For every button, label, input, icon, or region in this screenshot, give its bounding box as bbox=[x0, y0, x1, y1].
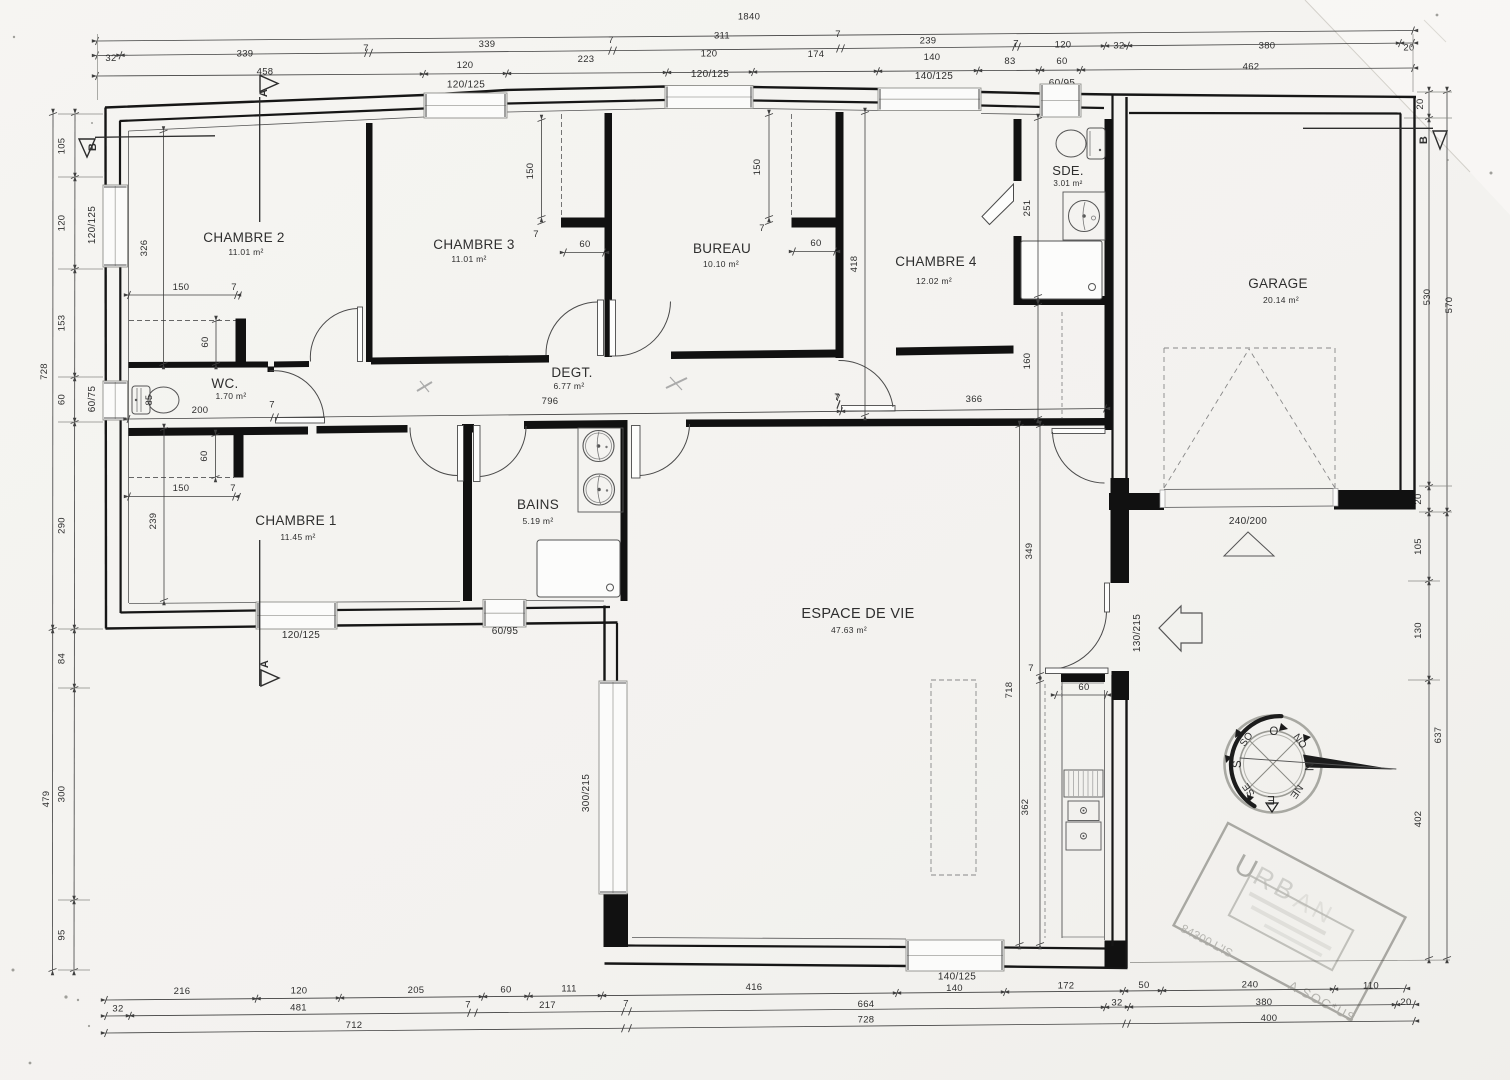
svg-text:60: 60 bbox=[57, 394, 68, 405]
svg-text:85: 85 bbox=[144, 395, 154, 406]
svg-text:3.01 m²: 3.01 m² bbox=[1053, 179, 1082, 188]
svg-text:47.63 m²: 47.63 m² bbox=[831, 625, 867, 635]
svg-text:366: 366 bbox=[966, 394, 983, 405]
svg-text:105: 105 bbox=[1413, 538, 1424, 555]
svg-text:479: 479 bbox=[41, 791, 52, 808]
svg-text:60: 60 bbox=[200, 336, 211, 347]
svg-text:1840: 1840 bbox=[738, 12, 760, 23]
svg-text:217: 217 bbox=[539, 1000, 556, 1011]
svg-text:60: 60 bbox=[579, 239, 590, 250]
svg-text:140: 140 bbox=[924, 52, 941, 63]
svg-text:380: 380 bbox=[1256, 997, 1273, 1008]
svg-text:32: 32 bbox=[1111, 998, 1122, 1009]
svg-text:O: O bbox=[1269, 726, 1278, 738]
svg-text:153: 153 bbox=[57, 315, 68, 332]
svg-text:140/125: 140/125 bbox=[938, 972, 976, 983]
svg-text:205: 205 bbox=[408, 985, 425, 996]
svg-text:B: B bbox=[87, 143, 99, 151]
svg-text:130/215: 130/215 bbox=[1132, 614, 1143, 652]
svg-text:339: 339 bbox=[237, 49, 254, 60]
svg-text:WC.: WC. bbox=[211, 376, 238, 391]
svg-text:300/215: 300/215 bbox=[581, 774, 592, 812]
svg-text:380: 380 bbox=[1259, 41, 1276, 52]
svg-text:140: 140 bbox=[946, 983, 963, 994]
svg-text:20: 20 bbox=[1415, 98, 1426, 109]
svg-text:150: 150 bbox=[525, 163, 536, 180]
svg-text:570: 570 bbox=[1444, 297, 1455, 314]
svg-text:458: 458 bbox=[257, 67, 274, 78]
svg-text:239: 239 bbox=[920, 36, 937, 47]
svg-text:CHAMBRE 4: CHAMBRE 4 bbox=[895, 254, 977, 269]
svg-text:400: 400 bbox=[1261, 1013, 1278, 1024]
svg-text:60: 60 bbox=[1078, 682, 1089, 693]
svg-text:84: 84 bbox=[57, 653, 68, 664]
svg-text:7: 7 bbox=[230, 483, 236, 494]
svg-text:796: 796 bbox=[542, 396, 559, 407]
svg-text:7: 7 bbox=[835, 29, 841, 40]
svg-text:300: 300 bbox=[57, 786, 68, 803]
svg-text:7: 7 bbox=[231, 282, 237, 293]
svg-text:5.19 m²: 5.19 m² bbox=[523, 516, 554, 526]
svg-text:32: 32 bbox=[105, 53, 116, 64]
svg-text:1.70 m²: 1.70 m² bbox=[216, 391, 247, 401]
svg-text:B: B bbox=[1418, 136, 1430, 144]
svg-text:160: 160 bbox=[1022, 353, 1033, 370]
svg-text:174: 174 bbox=[808, 49, 825, 60]
svg-text:418: 418 bbox=[849, 256, 860, 273]
svg-text:728: 728 bbox=[858, 1015, 875, 1026]
svg-text:A: A bbox=[259, 660, 271, 668]
svg-text:20: 20 bbox=[1400, 997, 1411, 1008]
svg-text:462: 462 bbox=[1243, 62, 1260, 73]
svg-text:6.77 m²: 6.77 m² bbox=[554, 381, 585, 391]
svg-text:216: 216 bbox=[174, 986, 191, 997]
svg-text:481: 481 bbox=[290, 1003, 307, 1014]
svg-text:200: 200 bbox=[192, 405, 209, 416]
svg-text:BAINS: BAINS bbox=[517, 497, 559, 512]
svg-text:339: 339 bbox=[479, 39, 496, 50]
svg-text:DEGT.: DEGT. bbox=[551, 365, 592, 380]
svg-text:60: 60 bbox=[500, 985, 511, 996]
svg-text:120: 120 bbox=[701, 49, 718, 60]
svg-text:223: 223 bbox=[578, 54, 595, 65]
svg-text:7: 7 bbox=[1013, 39, 1019, 50]
svg-text:172: 172 bbox=[1058, 981, 1075, 992]
svg-text:50: 50 bbox=[1138, 980, 1149, 991]
svg-text:240: 240 bbox=[1242, 980, 1259, 991]
svg-text:11.45 m²: 11.45 m² bbox=[280, 532, 315, 542]
svg-text:251: 251 bbox=[1022, 200, 1033, 217]
svg-text:120: 120 bbox=[57, 215, 68, 232]
svg-text:N: N bbox=[1302, 763, 1314, 772]
svg-text:111: 111 bbox=[561, 984, 576, 995]
svg-text:140/125: 140/125 bbox=[915, 71, 953, 82]
svg-text:120/125: 120/125 bbox=[447, 80, 485, 91]
svg-text:150: 150 bbox=[752, 159, 763, 176]
svg-text:416: 416 bbox=[746, 982, 763, 993]
svg-text:7: 7 bbox=[623, 999, 629, 1010]
svg-text:120: 120 bbox=[291, 986, 308, 997]
svg-text:20.14 m²: 20.14 m² bbox=[1263, 295, 1299, 305]
svg-text:718: 718 bbox=[1004, 682, 1015, 699]
svg-text:CHAMBRE 1: CHAMBRE 1 bbox=[255, 513, 336, 528]
svg-text:728: 728 bbox=[39, 363, 50, 380]
svg-text:664: 664 bbox=[858, 999, 875, 1010]
svg-text:95: 95 bbox=[57, 929, 68, 940]
svg-text:349: 349 bbox=[1024, 543, 1035, 560]
svg-text:12.02 m²: 12.02 m² bbox=[916, 276, 952, 286]
svg-text:S: S bbox=[1232, 760, 1244, 768]
svg-text:10.10 m²: 10.10 m² bbox=[703, 259, 739, 269]
svg-text:32: 32 bbox=[112, 1004, 123, 1015]
svg-text:7: 7 bbox=[465, 1000, 471, 1011]
svg-text:530: 530 bbox=[1422, 289, 1433, 306]
svg-text:32: 32 bbox=[1113, 41, 1124, 52]
svg-text:130: 130 bbox=[1413, 622, 1424, 639]
svg-text:7: 7 bbox=[608, 35, 614, 46]
svg-text:7: 7 bbox=[363, 43, 369, 54]
svg-text:60: 60 bbox=[1056, 56, 1067, 67]
svg-text:150: 150 bbox=[173, 483, 190, 494]
svg-text:150: 150 bbox=[173, 282, 190, 293]
svg-text:290: 290 bbox=[57, 517, 68, 534]
svg-text:60/75: 60/75 bbox=[87, 386, 98, 413]
svg-text:7: 7 bbox=[759, 223, 765, 234]
svg-text:A: A bbox=[258, 89, 270, 97]
svg-text:83: 83 bbox=[1004, 56, 1015, 67]
svg-text:239: 239 bbox=[148, 513, 159, 530]
svg-text:637: 637 bbox=[1433, 727, 1444, 744]
svg-text:BUREAU: BUREAU bbox=[693, 241, 751, 256]
svg-text:120/125: 120/125 bbox=[87, 206, 98, 244]
svg-text:60/95: 60/95 bbox=[492, 626, 519, 637]
svg-text:105: 105 bbox=[57, 138, 68, 155]
svg-text:60: 60 bbox=[199, 450, 210, 461]
svg-text:7: 7 bbox=[1028, 663, 1034, 674]
svg-text:GARAGE: GARAGE bbox=[1248, 276, 1308, 291]
svg-text:362: 362 bbox=[1020, 799, 1031, 816]
svg-text:CHAMBRE 2: CHAMBRE 2 bbox=[203, 230, 284, 245]
svg-text:120/125: 120/125 bbox=[282, 630, 320, 641]
svg-text:712: 712 bbox=[346, 1020, 363, 1031]
svg-text:120: 120 bbox=[1055, 40, 1072, 51]
svg-text:11.01 m²: 11.01 m² bbox=[451, 254, 486, 264]
svg-text:CHAMBRE 3: CHAMBRE 3 bbox=[433, 237, 514, 252]
svg-text:60: 60 bbox=[810, 238, 821, 249]
svg-text:311: 311 bbox=[714, 31, 730, 42]
svg-text:7: 7 bbox=[533, 229, 539, 240]
svg-text:326: 326 bbox=[139, 240, 150, 257]
svg-text:120: 120 bbox=[457, 60, 474, 71]
svg-text:ESPACE DE VIE: ESPACE DE VIE bbox=[801, 606, 914, 622]
svg-text:120/125: 120/125 bbox=[691, 69, 729, 80]
svg-text:7: 7 bbox=[269, 400, 275, 411]
svg-text:402: 402 bbox=[1413, 811, 1424, 828]
svg-text:SDE.: SDE. bbox=[1052, 163, 1084, 178]
svg-text:7: 7 bbox=[834, 392, 840, 403]
svg-text:240/200: 240/200 bbox=[1229, 516, 1267, 527]
svg-text:11.01 m²: 11.01 m² bbox=[228, 247, 263, 257]
